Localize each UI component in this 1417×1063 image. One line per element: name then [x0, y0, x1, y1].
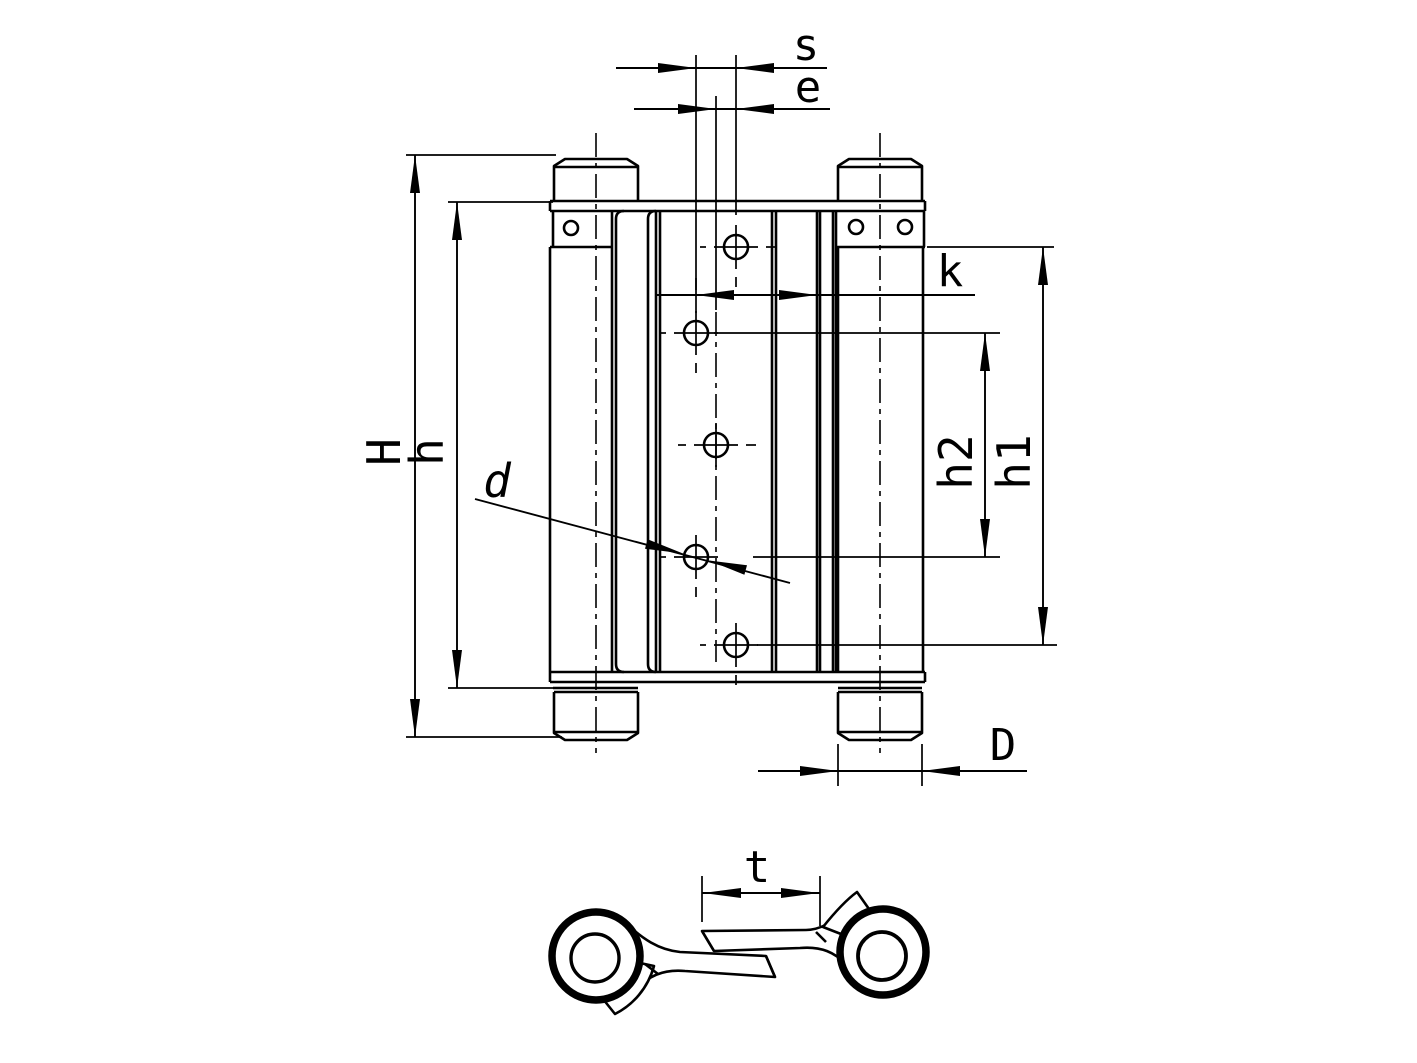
dimension-h2: h2: [714, 333, 1000, 557]
flange-hole: [849, 220, 863, 234]
front-view: [550, 133, 925, 753]
dim-label-e: e: [795, 62, 822, 113]
flange-hole: [898, 220, 912, 234]
dimension-h: h: [400, 202, 553, 688]
dimension-d: d: [475, 454, 790, 583]
dimension-h1: h1: [757, 247, 1057, 645]
section-left-ring: [552, 912, 640, 1000]
dim-label-t: t: [744, 842, 771, 893]
left-flange: [550, 211, 612, 247]
section-top-leaf: [702, 912, 847, 964]
dimension-e: e: [634, 62, 830, 310]
top-band: [550, 201, 925, 211]
dim-label-h2: h2: [929, 434, 983, 489]
left-barrel: [550, 247, 612, 672]
dim-label-D: D: [990, 720, 1017, 771]
dimension-H: H: [357, 155, 562, 737]
dim-label-k: k: [937, 246, 964, 297]
dimension-t: t: [702, 842, 820, 926]
dim-label-h: h: [400, 438, 454, 466]
right-flange: [837, 211, 925, 247]
technical-drawing-page: s e H h k h1: [0, 0, 1417, 1063]
hinge-drawing-svg: s e H h k h1: [0, 0, 1417, 1063]
dimension-D: D: [758, 720, 1027, 786]
left-leaf-fold: [616, 211, 656, 672]
bottom-band: [550, 672, 925, 688]
section-right-ring: [840, 909, 926, 995]
right-leaf-fold: [817, 211, 836, 672]
dim-label-h1: h1: [987, 434, 1041, 489]
section-view: t: [552, 842, 926, 1014]
dim-label-d: d: [483, 454, 512, 508]
pin-hole: [564, 221, 578, 235]
